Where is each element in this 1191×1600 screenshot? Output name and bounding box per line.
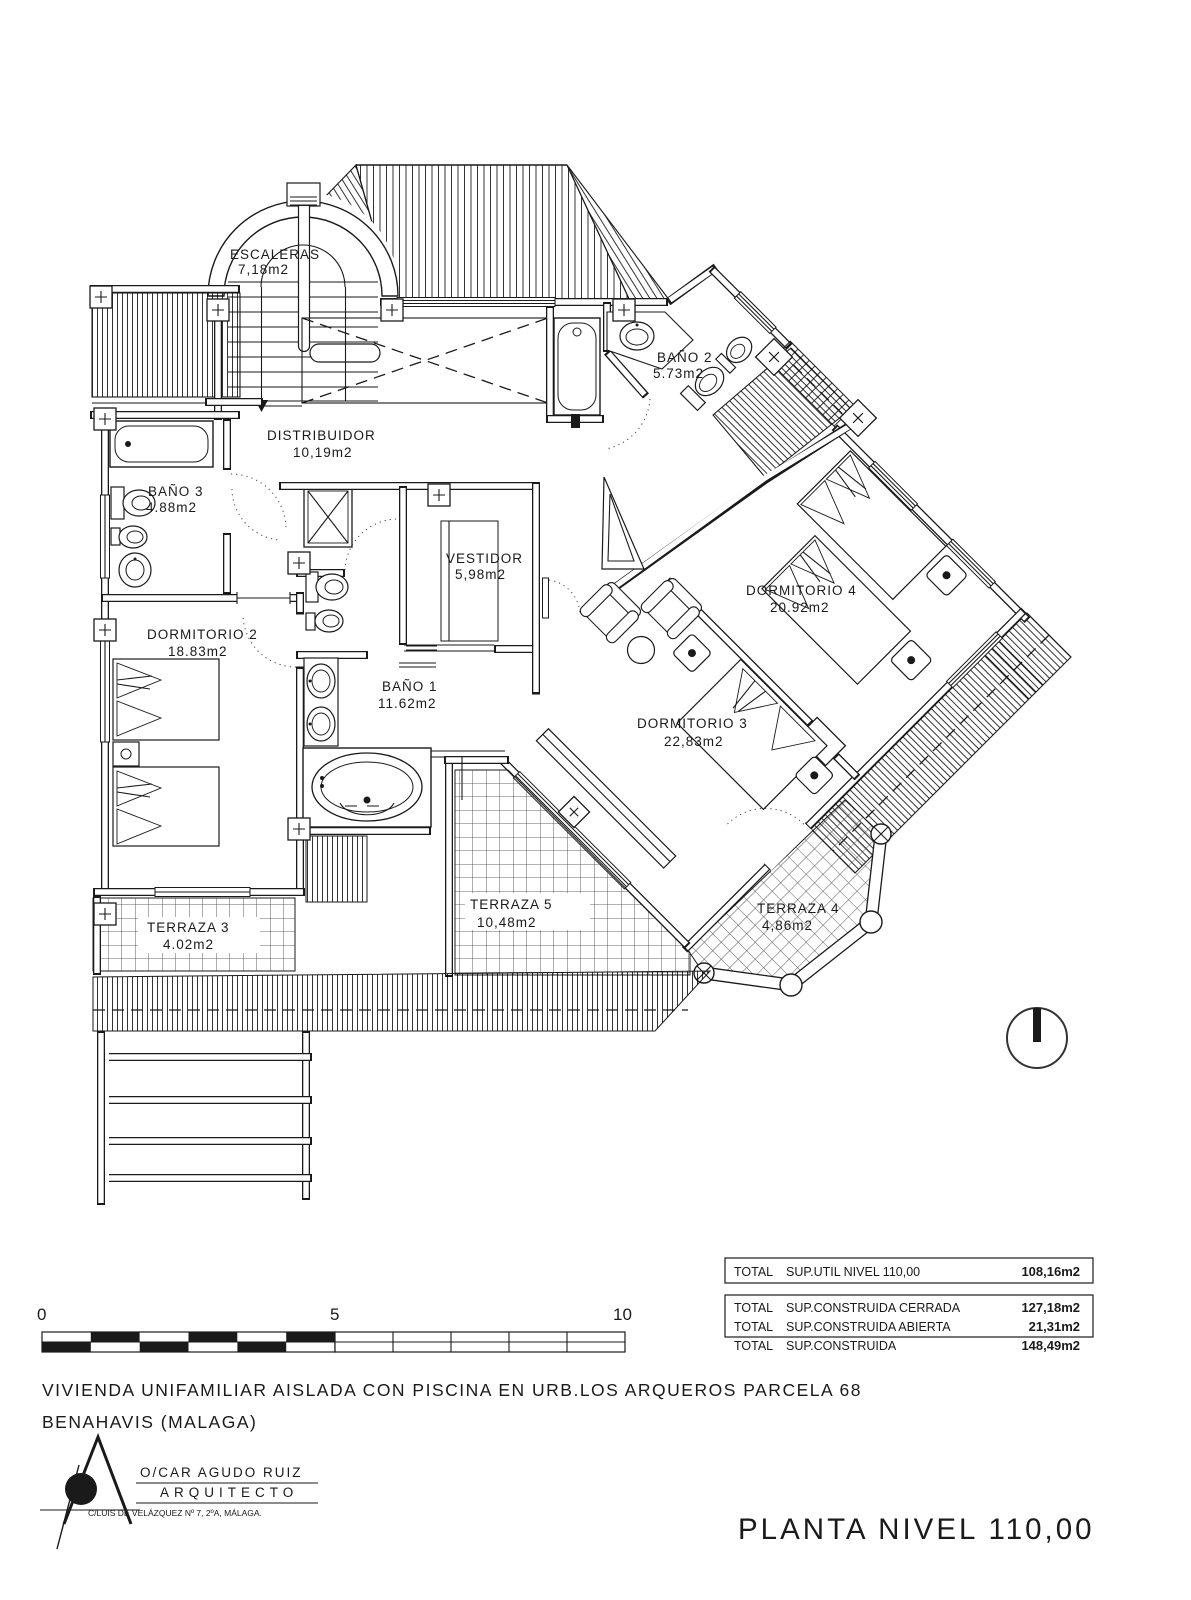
svg-text:4,86m2: 4,86m2 xyxy=(762,918,813,933)
svg-text:ESCALERAS: ESCALERAS xyxy=(230,247,320,262)
svg-text:21,31m2: 21,31m2 xyxy=(1029,1319,1080,1334)
svg-text:C/LUIS DE VELÁZQUEZ Nº 7,: C/LUIS DE VELÁZQUEZ Nº 7, 2ºA, MÁLAGA. xyxy=(88,1508,262,1518)
svg-text:SUP.CONSTRUIDA CERRADA: SUP.CONSTRUIDA CERRADA xyxy=(786,1301,961,1315)
svg-text:108,16m2: 108,16m2 xyxy=(1021,1264,1080,1279)
svg-text:11.62m2: 11.62m2 xyxy=(378,696,437,711)
svg-text:PLANTA NIVEL 110,00: PLANTA NIVEL 110,00 xyxy=(738,1513,1095,1546)
svg-text:VESTIDOR: VESTIDOR xyxy=(446,551,523,566)
svg-text:4.02m2: 4.02m2 xyxy=(163,937,214,952)
svg-text:DORMITORIO 3: DORMITORIO 3 xyxy=(637,716,748,731)
svg-text:5.73m2: 5.73m2 xyxy=(653,366,704,381)
svg-text:20.92m2: 20.92m2 xyxy=(770,600,830,615)
svg-text:BAÑO 1: BAÑO 1 xyxy=(382,679,438,694)
svg-text:VIVIENDA UNIFAMILIAR AISLADA: VIVIENDA UNIFAMILIAR AISLADA CON PISCINA… xyxy=(42,1380,862,1400)
svg-text:148,49m2: 148,49m2 xyxy=(1021,1338,1080,1353)
svg-text:DISTRIBUIDOR: DISTRIBUIDOR xyxy=(267,428,376,443)
svg-text:18.83m2: 18.83m2 xyxy=(168,644,228,659)
svg-text:SUP.CONSTRUIDA: SUP.CONSTRUIDA xyxy=(786,1339,897,1353)
svg-text:BENAHAVIS (MALAGA): BENAHAVIS (MALAGA) xyxy=(42,1412,257,1432)
svg-text:O/CAR AGUDO RUIZ: O/CAR AGUDO RUIZ xyxy=(140,1465,303,1480)
svg-text:TOTAL: TOTAL xyxy=(734,1320,773,1334)
svg-text:7,18m2: 7,18m2 xyxy=(238,262,289,277)
svg-text:10,19m2: 10,19m2 xyxy=(293,445,353,460)
svg-text:4.88m2: 4.88m2 xyxy=(146,500,197,515)
svg-text:TOTAL: TOTAL xyxy=(734,1339,773,1353)
svg-text:TOTAL: TOTAL xyxy=(734,1301,773,1315)
svg-text:10: 10 xyxy=(613,1305,632,1324)
svg-text:DORMITORIO 4: DORMITORIO 4 xyxy=(746,583,857,598)
svg-text:10,48m2: 10,48m2 xyxy=(477,915,537,930)
svg-text:TOTAL: TOTAL xyxy=(734,1265,773,1279)
svg-text:127,18m2: 127,18m2 xyxy=(1021,1300,1080,1315)
svg-text:22,83m2: 22,83m2 xyxy=(664,734,724,749)
svg-text:BAÑO 3: BAÑO 3 xyxy=(148,484,204,499)
svg-text:TERRAZA 3: TERRAZA 3 xyxy=(147,920,230,935)
svg-text:SUP.CONSTRUIDA ABIERTA: SUP.CONSTRUIDA ABIERTA xyxy=(786,1320,951,1334)
svg-text:BAÑO 2: BAÑO 2 xyxy=(657,350,713,365)
svg-text:TERRAZA 4: TERRAZA 4 xyxy=(757,901,840,916)
svg-text:SUP.UTIL NIVEL 110,00: SUP.UTIL NIVEL 110,00 xyxy=(786,1265,920,1279)
svg-text:5,98m2: 5,98m2 xyxy=(455,567,506,582)
svg-text:0: 0 xyxy=(37,1305,46,1324)
svg-text:ARQUITECTO: ARQUITECTO xyxy=(160,1485,298,1500)
svg-text:TERRAZA 5: TERRAZA 5 xyxy=(470,897,553,912)
svg-text:5: 5 xyxy=(330,1305,339,1324)
svg-text:DORMITORIO 2: DORMITORIO 2 xyxy=(147,627,258,642)
